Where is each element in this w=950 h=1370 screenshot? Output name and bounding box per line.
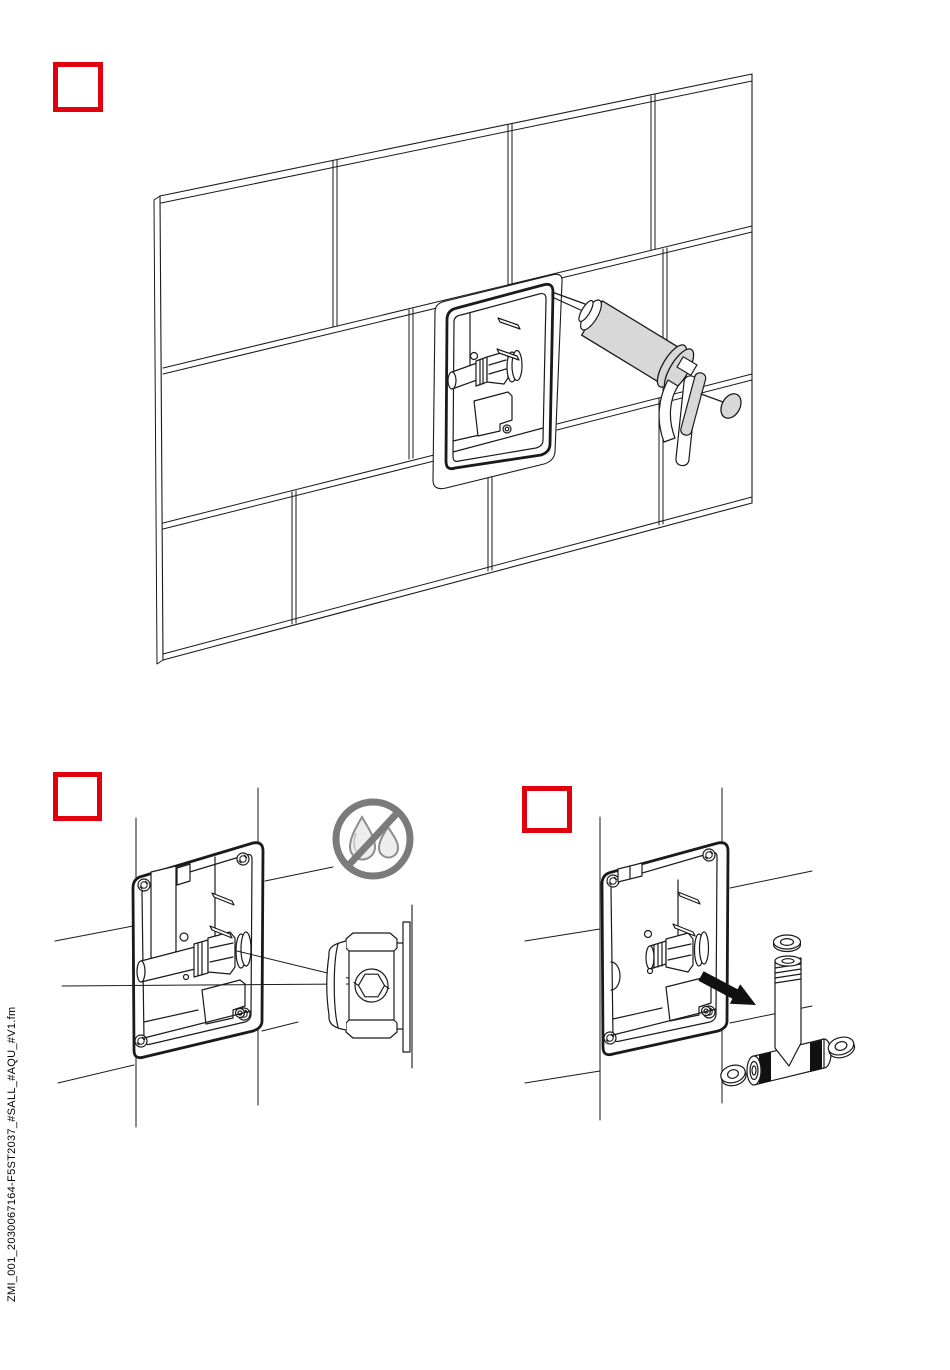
installation-box-2: [133, 843, 263, 1058]
installation-box-3: [602, 843, 728, 1055]
recessed-installation-box: [446, 284, 553, 468]
hex-socket: [359, 974, 385, 997]
figure-valve-no-water: [55, 788, 412, 1127]
no-water-drops-icon: [336, 802, 410, 876]
illustrations-canvas: [0, 0, 950, 1370]
figure-seal-recess: [154, 74, 752, 664]
washer-left: [719, 1062, 749, 1088]
valve-detail: [327, 905, 412, 1068]
manual-page: ZMI_001_2030067164-F5ST2037_#SALL_#AQU_#…: [0, 0, 950, 1370]
figure-elbow-fitting: [525, 788, 857, 1120]
elbow-pipe-fitting: [719, 935, 857, 1089]
washer-top: [774, 935, 801, 952]
